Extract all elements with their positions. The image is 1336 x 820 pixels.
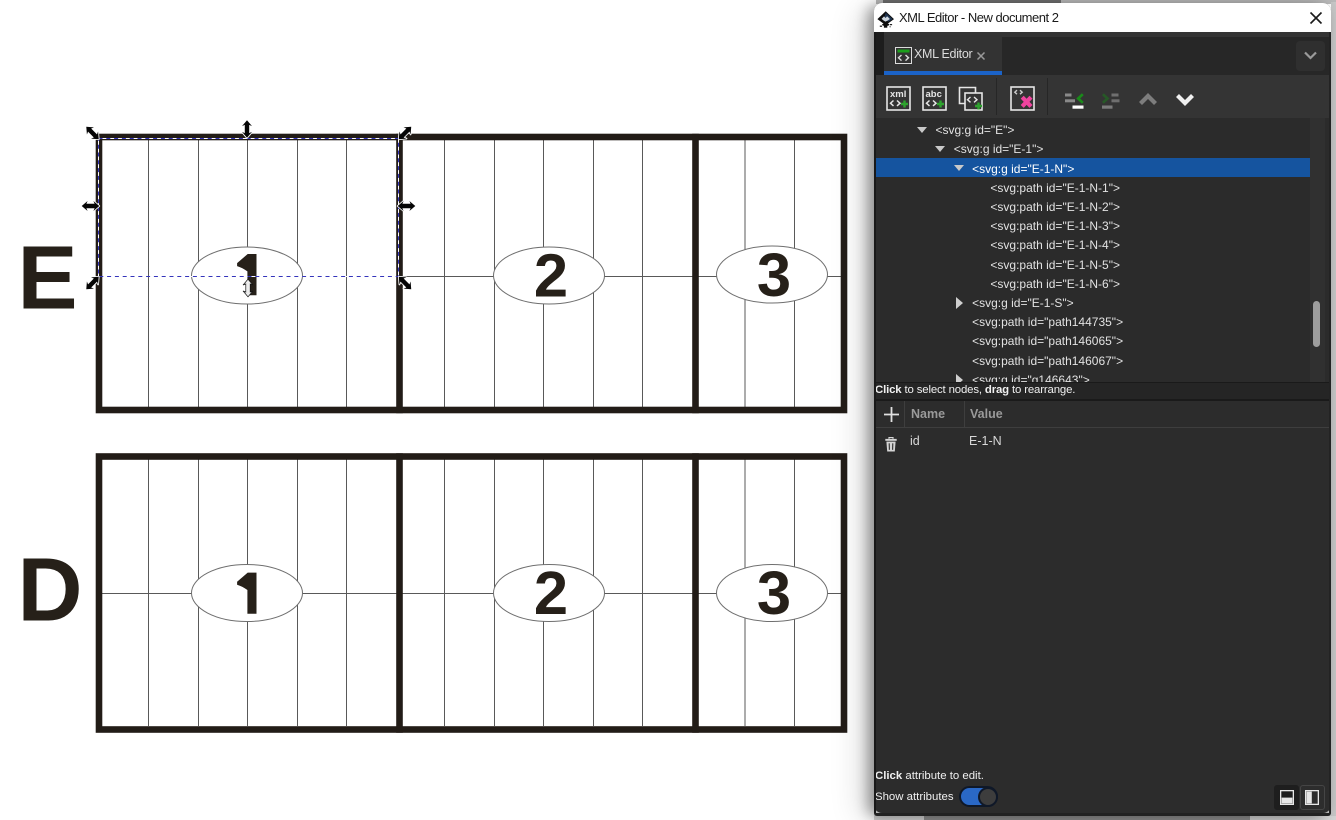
svg-text:2: 2 [534,242,568,311]
svg-text:3: 3 [757,559,791,628]
svg-text:2: 2 [534,559,568,628]
svg-text:3: 3 [757,241,791,310]
svg-text:D: D [18,541,83,641]
svg-text:abc: abc [926,89,942,100]
svg-text:E: E [18,229,78,329]
svg-text:xml: xml [890,89,906,100]
